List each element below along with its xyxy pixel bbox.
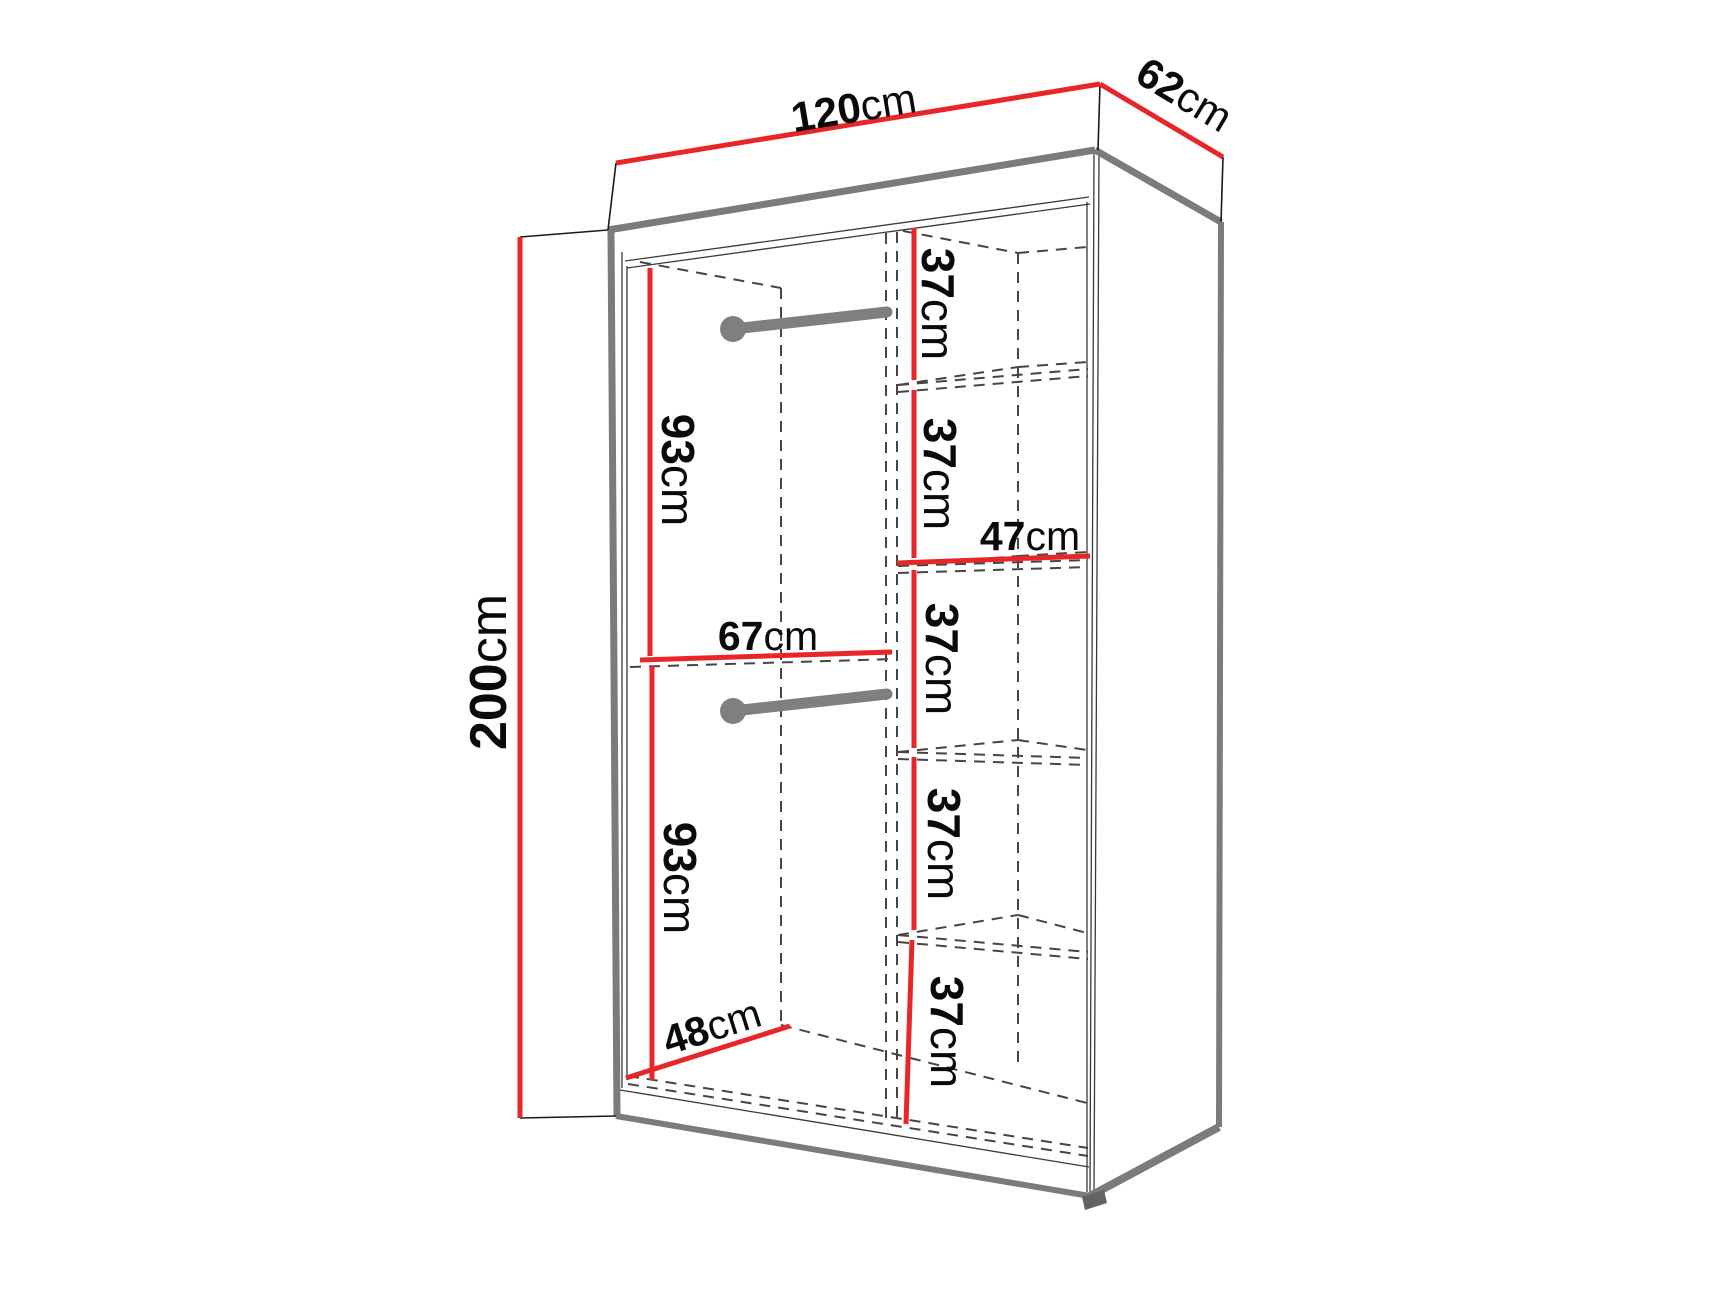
left-width-label: 67cm: [718, 613, 818, 659]
side-right-edge: [1219, 222, 1221, 1127]
upper-hanging-height-label: 93cm: [652, 414, 704, 527]
upper-rail-end-cap: [720, 316, 746, 342]
wardrobe-dimension-diagram: 120cm 62cm 200cm 93cm 93cm 67cm 48cm 47c…: [0, 0, 1726, 1295]
lower-hanging-height-label: 93cm: [654, 822, 706, 935]
shelf-spacing-label-3: 37cm: [916, 603, 968, 716]
shelf-spacing-label-1: 37cm: [912, 248, 964, 361]
height-extension-bottom: [520, 1116, 616, 1118]
shelf-spacing-label-2: 37cm: [914, 418, 966, 531]
height-extension-top: [520, 230, 608, 237]
side-face: [1090, 150, 1221, 1196]
shelf-spacing-label-5: 37cm: [921, 976, 973, 1089]
shelf-spacing-label-4: 37cm: [918, 788, 970, 901]
diagram-canvas: 120cm 62cm 200cm 93cm 93cm 67cm 48cm 47c…: [0, 0, 1726, 1295]
lower-rail-end-cap: [720, 698, 746, 724]
shelf-width-label: 47cm: [980, 513, 1080, 559]
height-dimension-label: 200cm: [460, 594, 518, 750]
